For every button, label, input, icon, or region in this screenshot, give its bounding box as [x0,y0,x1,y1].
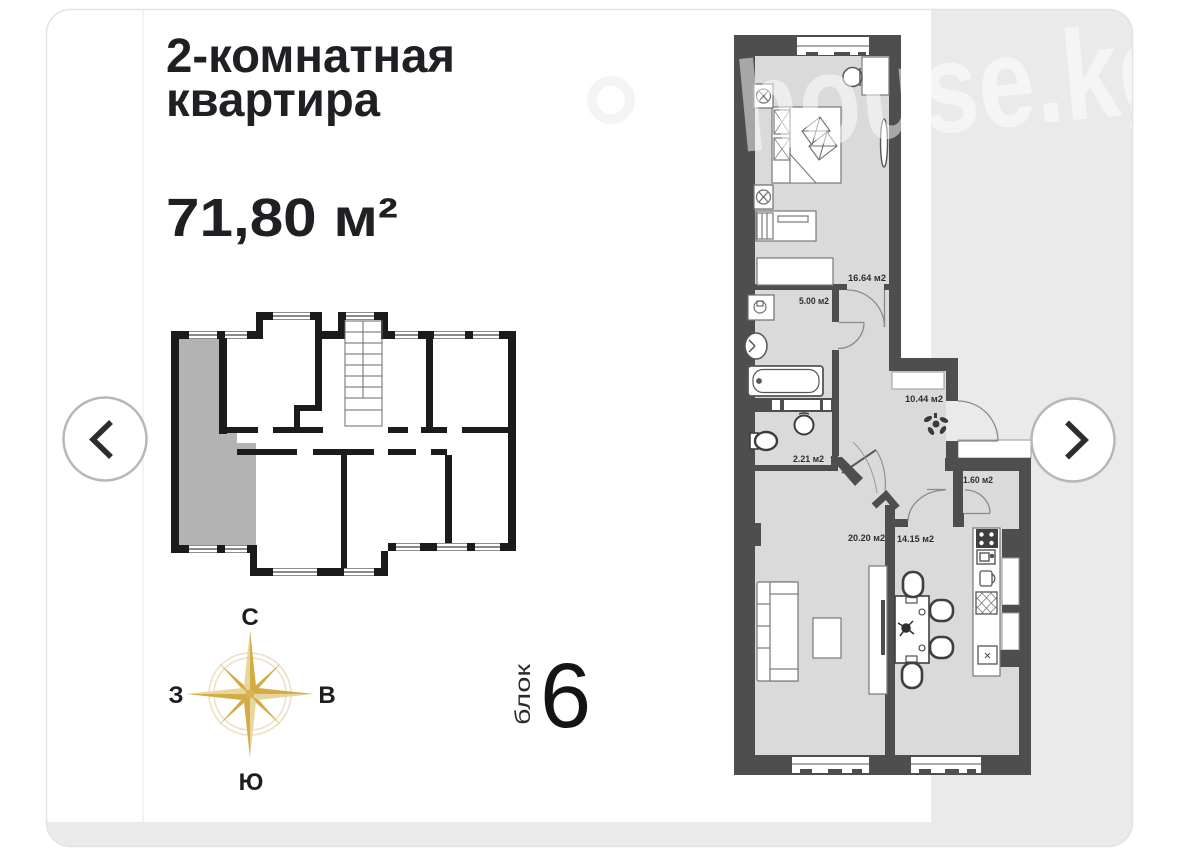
svg-text:10.44 м2: 10.44 м2 [905,394,943,404]
svg-text:2.21 м2: 2.21 м2 [793,454,824,464]
svg-text:16.64 м2: 16.64 м2 [848,273,886,283]
svg-text:С: С [241,604,258,631]
svg-text:71,80 м²: 71,80 м² [166,188,398,248]
svg-text:14.15 м2: 14.15 м2 [897,534,934,544]
svg-text:В: В [318,682,335,709]
svg-text:20.20 м2: 20.20 м2 [848,533,885,543]
svg-text:Ю: Ю [239,769,264,796]
svg-text:З: З [168,682,183,709]
svg-text:блок: блок [512,663,535,725]
svg-text:1.60 м2: 1.60 м2 [963,475,993,485]
svg-text:6: 6 [540,645,591,747]
svg-text:квартира: квартира [166,74,380,127]
svg-text:5.00 м2: 5.00 м2 [799,296,829,306]
